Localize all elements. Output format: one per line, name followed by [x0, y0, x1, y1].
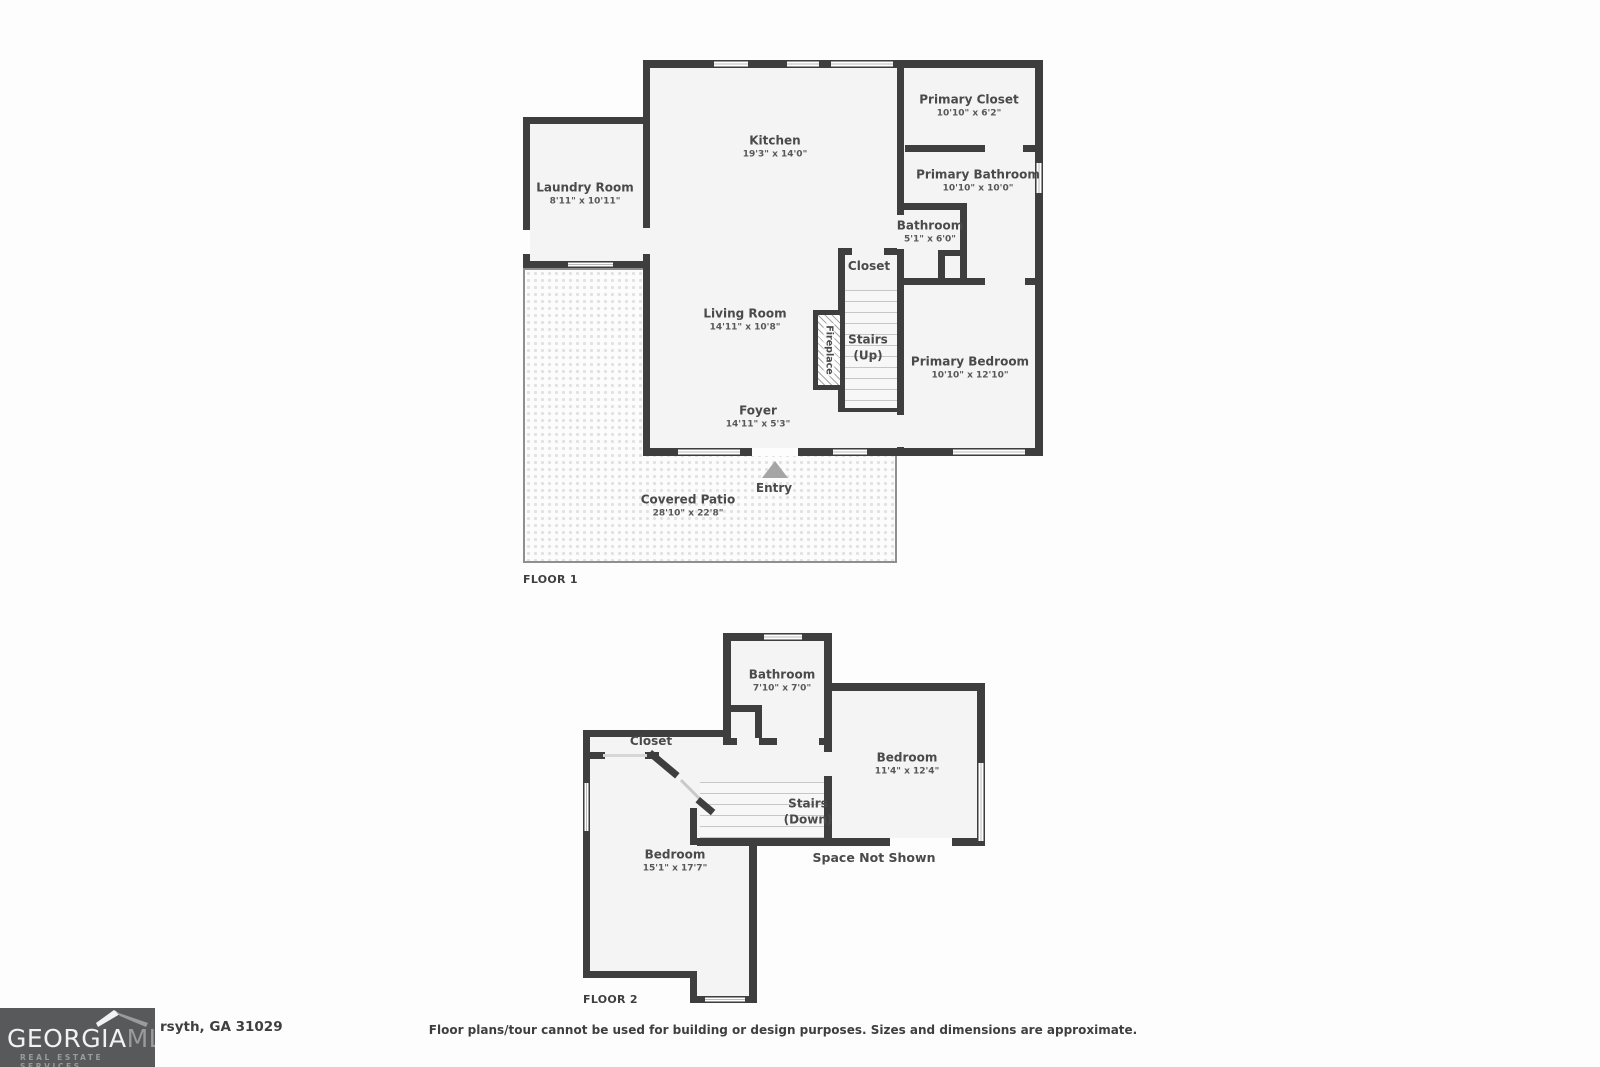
room-label-primary-bathroom: Primary Bathroom 10'10" x 10'0"	[916, 167, 1040, 194]
room-label-stairs-down: Stairs (Down)	[784, 796, 833, 827]
entry-opening	[752, 448, 798, 456]
wall	[690, 808, 697, 845]
space-not-shown-label: Space Not Shown	[813, 850, 936, 866]
room-label-bedroom-left: Bedroom 15'1" x 17'7"	[643, 847, 708, 874]
door-opening	[890, 838, 952, 846]
room-label-laundry: Laundry Room 8'11" x 10'11"	[536, 180, 634, 207]
property-address: rsyth, GA 31029	[160, 1019, 283, 1035]
window	[678, 449, 740, 455]
wall	[1035, 60, 1043, 456]
wall	[723, 633, 731, 745]
floor-plan-page: Fireplace Kitchen 19'3" x 14'0" Laundry …	[0, 0, 1600, 1067]
door-opening	[643, 228, 650, 254]
room-label-foyer: Foyer 14'11" x 5'3"	[726, 403, 791, 430]
room-label-closet2: Closet	[630, 734, 672, 750]
wall	[938, 250, 960, 256]
room-label-primary-bedroom: Primary Bedroom 10'10" x 12'10"	[911, 354, 1029, 381]
door-opening	[985, 278, 1025, 285]
georgia-mls-logo: GEORGIAMLS REAL ESTATE SERVICES	[0, 1008, 155, 1067]
window	[953, 449, 1025, 455]
room-label-bathroom1: Bathroom 5'1" x 6'0"	[897, 218, 963, 245]
logo-tagline: REAL ESTATE SERVICES	[20, 1053, 155, 1067]
window	[833, 449, 867, 455]
wall	[897, 60, 904, 448]
window	[764, 634, 802, 640]
window	[584, 783, 589, 831]
room-label-kitchen: Kitchen 19'3" x 14'0"	[743, 133, 808, 160]
window	[831, 61, 893, 67]
disclaimer-text: Floor plans/tour cannot be used for buil…	[429, 1023, 1137, 1037]
wall	[523, 117, 650, 124]
wall	[583, 752, 605, 759]
window	[787, 61, 819, 67]
logo-wordmark: GEORGIAMLS	[7, 1024, 155, 1053]
room-label-stairs-up: Stairs (Up)	[848, 332, 888, 363]
fireplace-label: Fireplace	[824, 323, 835, 376]
entry-label: Entry	[756, 481, 792, 497]
wall	[832, 683, 985, 691]
room-label-closet1: Closet	[848, 259, 890, 275]
floor2-label: FLOOR 2	[583, 993, 638, 1006]
door-opening	[985, 145, 1023, 152]
room-label-primary-closet: Primary Closet 10'10" x 6'2"	[919, 92, 1019, 119]
room-label-living-room: Living Room 14'11" x 10'8"	[703, 306, 786, 333]
door-opening	[737, 738, 759, 745]
window	[705, 997, 745, 1002]
room-label-covered-patio: Covered Patio 28'10" x 22'8"	[641, 492, 736, 519]
entry-arrow-icon	[762, 461, 788, 478]
wall	[824, 633, 832, 745]
door-opening	[523, 230, 530, 254]
door-opening	[777, 738, 819, 745]
wall	[749, 845, 757, 1003]
room-label-bedroom-right: Bedroom 11'4" x 12'4"	[875, 750, 940, 777]
room-label-bathroom2: Bathroom 7'10" x 7'0"	[749, 667, 815, 694]
closet-opening	[603, 754, 647, 757]
window	[978, 763, 984, 841]
wall	[897, 203, 967, 210]
door-opening	[824, 752, 832, 776]
door-opening	[897, 415, 904, 447]
window	[568, 262, 613, 267]
wall	[583, 971, 695, 978]
floor1-label: FLOOR 1	[523, 573, 578, 586]
fireplace: Fireplace	[813, 310, 845, 390]
door-opening	[852, 248, 884, 255]
wall	[583, 730, 590, 978]
window	[714, 61, 748, 67]
